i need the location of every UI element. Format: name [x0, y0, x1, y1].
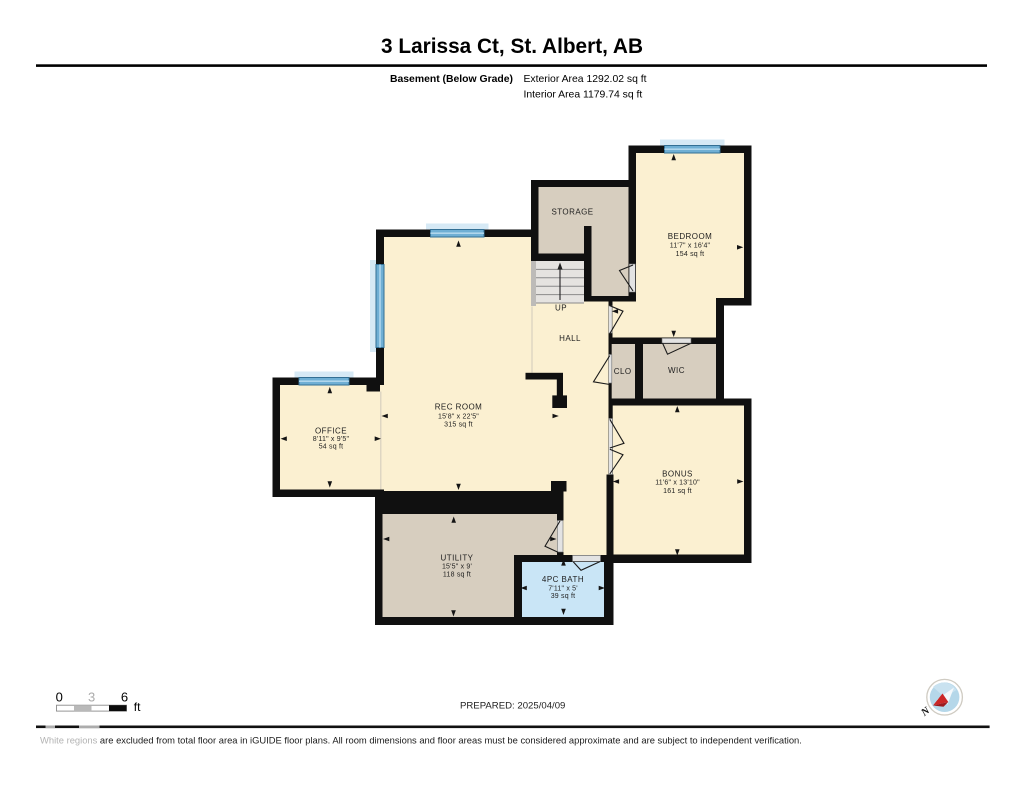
- svg-text:WIC: WIC: [668, 366, 685, 375]
- svg-text:UTILITY: UTILITY: [441, 553, 474, 562]
- svg-text:15'5" x 9': 15'5" x 9': [442, 563, 472, 570]
- svg-text:Exterior Area 1292.02 sq ft: Exterior Area 1292.02 sq ft: [524, 74, 647, 85]
- svg-text:0: 0: [56, 690, 63, 705]
- svg-text:STORAGE: STORAGE: [551, 207, 593, 216]
- svg-text:OFFICE: OFFICE: [315, 427, 347, 436]
- svg-text:HALL: HALL: [559, 334, 581, 343]
- svg-text:161 sq ft: 161 sq ft: [663, 488, 692, 495]
- svg-text:11'7" x 16'4": 11'7" x 16'4": [670, 242, 711, 249]
- svg-text:CLO: CLO: [614, 367, 632, 376]
- svg-text:White regions are excluded fro: White regions are excluded from total fl…: [40, 735, 802, 746]
- svg-text:3 Larissa Ct, St. Albert, AB: 3 Larissa Ct, St. Albert, AB: [381, 35, 643, 58]
- svg-text:BONUS: BONUS: [662, 470, 693, 479]
- svg-text:54 sq ft: 54 sq ft: [319, 444, 344, 451]
- svg-text:118 sq ft: 118 sq ft: [443, 572, 471, 579]
- svg-text:Basement (Below Grade): Basement (Below Grade): [390, 74, 513, 85]
- svg-text:UP: UP: [555, 303, 567, 312]
- svg-text:3: 3: [88, 690, 95, 705]
- svg-text:PREPARED: 2025/04/09: PREPARED: 2025/04/09: [460, 700, 565, 711]
- svg-text:4PC BATH: 4PC BATH: [542, 575, 584, 584]
- svg-text:315 sq ft: 315 sq ft: [444, 422, 473, 429]
- svg-text:154 sq ft: 154 sq ft: [676, 251, 705, 258]
- svg-text:7'11" x 5': 7'11" x 5': [548, 585, 578, 592]
- svg-text:15'8" x 22'5": 15'8" x 22'5": [438, 414, 479, 421]
- svg-text:REC ROOM: REC ROOM: [435, 403, 483, 412]
- svg-text:ft: ft: [134, 700, 141, 714]
- svg-text:39 sq ft: 39 sq ft: [551, 593, 576, 600]
- svg-text:Interior Area 1179.74 sq ft: Interior Area 1179.74 sq ft: [524, 90, 643, 101]
- svg-text:BEDROOM: BEDROOM: [668, 232, 713, 241]
- svg-text:8'11" x 9'5": 8'11" x 9'5": [313, 436, 350, 443]
- svg-text:6: 6: [121, 690, 128, 705]
- svg-text:11'6" x 13'10": 11'6" x 13'10": [655, 480, 700, 487]
